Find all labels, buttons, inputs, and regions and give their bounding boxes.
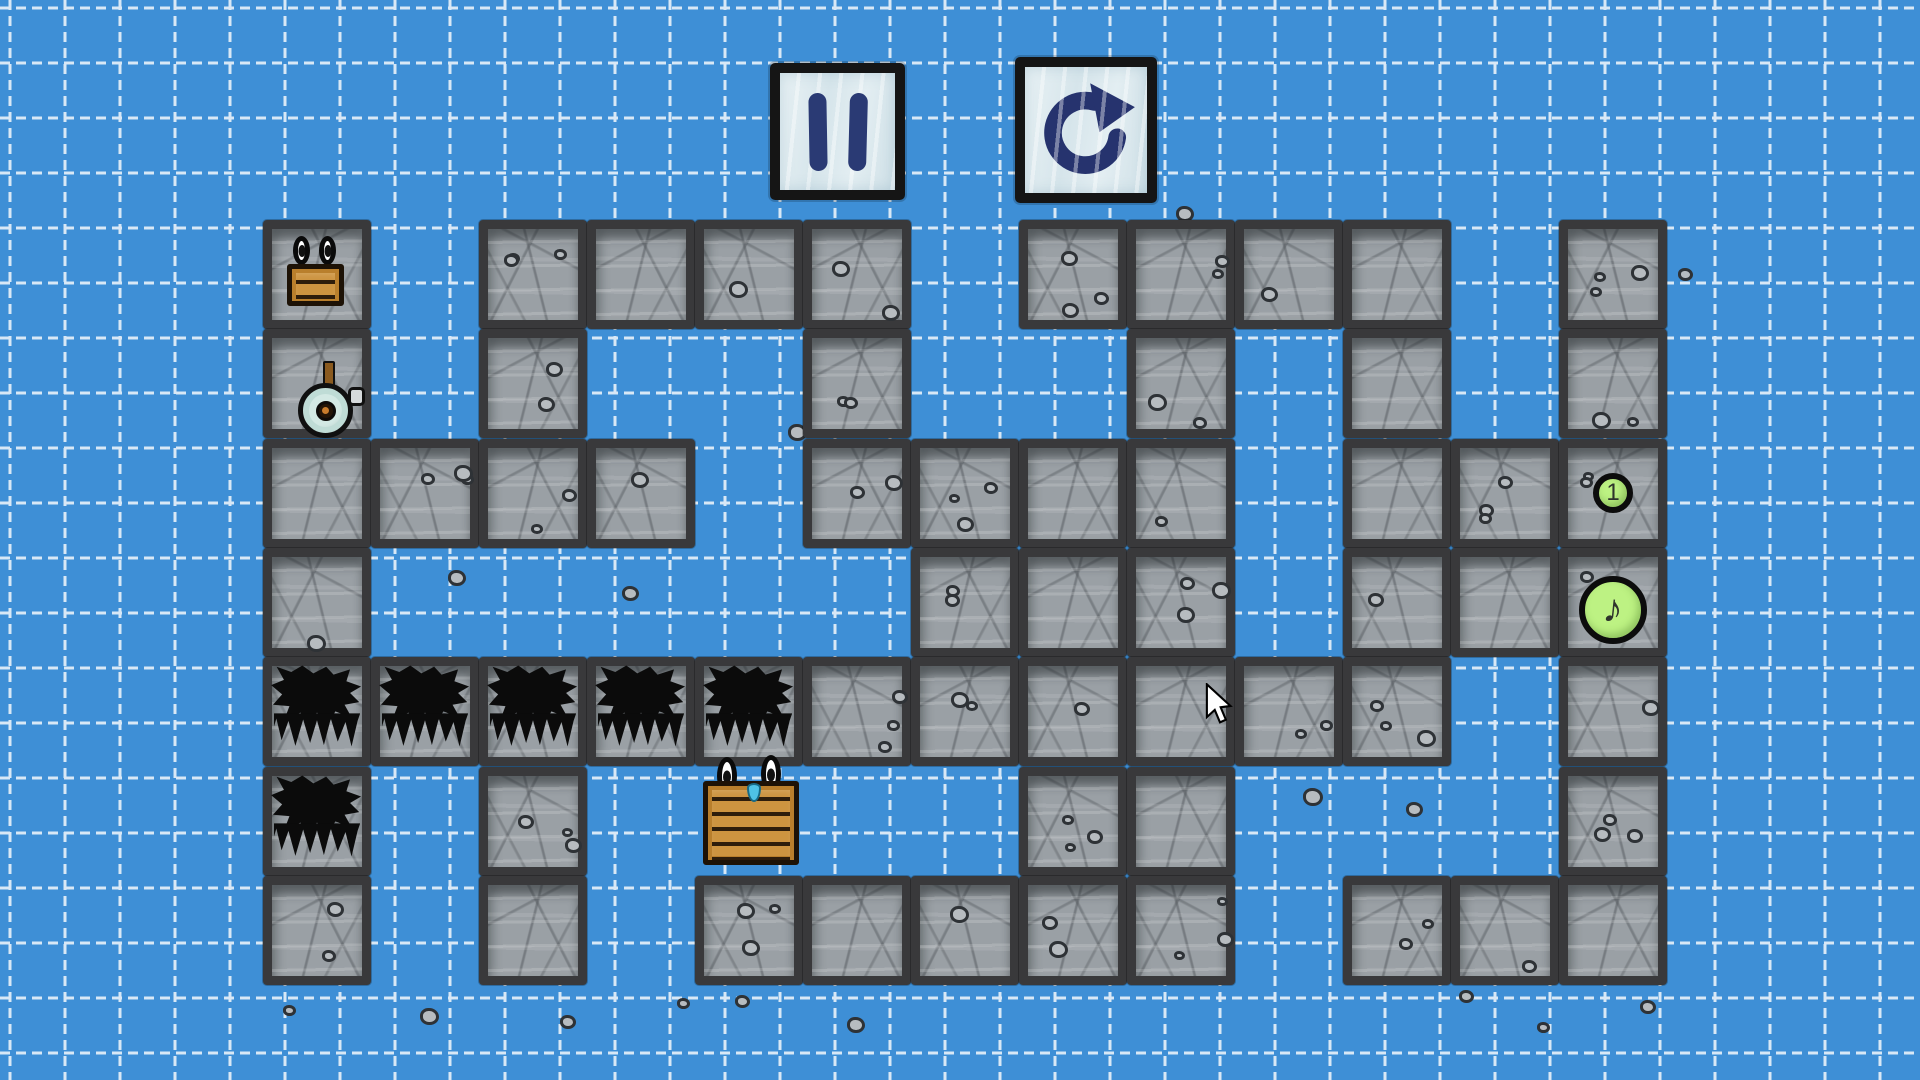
pebble [878, 741, 892, 753]
pebble [882, 305, 900, 321]
pebble [1180, 577, 1195, 590]
pebble [1590, 287, 1602, 297]
pebble [562, 489, 577, 502]
pause-icon [808, 92, 827, 170]
stone-tile [911, 548, 1019, 657]
pebble [1498, 476, 1513, 489]
stone-tile [911, 439, 1019, 548]
stone-tile [803, 439, 911, 548]
pebble [518, 815, 534, 829]
stone-tile [1559, 876, 1667, 985]
pebble [1592, 412, 1611, 429]
mouse-cursor [1205, 683, 1235, 725]
stone-tile [1019, 548, 1127, 657]
bomb-nub [348, 387, 365, 406]
pebble [887, 720, 900, 731]
pebble [1303, 788, 1323, 806]
pebble [1217, 897, 1228, 906]
pause-button[interactable] [770, 63, 905, 200]
pebble [1631, 265, 1649, 281]
pebble [1627, 829, 1643, 843]
pebble [1603, 814, 1617, 826]
pebble [850, 486, 865, 499]
pebble [1642, 700, 1660, 716]
pebble [1148, 394, 1167, 411]
spike-tile [695, 657, 803, 766]
spike-teeth-icon [706, 713, 792, 748]
pebble [562, 828, 573, 837]
spike-teeth-icon [274, 823, 360, 858]
spike-tile [587, 657, 695, 766]
pebble [560, 1015, 576, 1029]
pebble [1417, 730, 1436, 747]
stone-tile [695, 220, 803, 329]
stone-tile [587, 439, 695, 548]
pebble [742, 940, 760, 956]
stone-tile [1343, 329, 1451, 438]
stone-tile [803, 220, 911, 329]
pebble [420, 1008, 439, 1025]
pebble [1320, 720, 1333, 731]
pebble [322, 950, 336, 962]
pebble [554, 249, 567, 260]
stone-tile [1451, 439, 1559, 548]
pebble [1368, 593, 1384, 607]
small-crate[interactable] [287, 236, 344, 306]
stone-tile [1127, 767, 1235, 876]
pebble [1537, 1022, 1550, 1033]
stone-tile [1019, 767, 1127, 876]
stone-tile [911, 657, 1019, 766]
pebble [729, 281, 748, 298]
pebble [735, 995, 750, 1008]
stone-tile [1127, 876, 1235, 985]
stone-tile [479, 767, 587, 876]
pebble [565, 838, 582, 853]
stone-tile [479, 329, 587, 438]
pebble [1479, 513, 1492, 524]
crate-eye-icon [293, 236, 310, 265]
pebble [1212, 269, 1224, 279]
pebble [283, 1005, 296, 1016]
pebble [1380, 721, 1392, 731]
switch-button-1[interactable]: 1 [1593, 473, 1633, 513]
stone-tile [1127, 439, 1235, 548]
stone-tile [1343, 876, 1451, 985]
stone-tile [1019, 876, 1127, 985]
stone-tile [1019, 657, 1127, 766]
big-crate[interactable] [703, 757, 799, 865]
pebble [1177, 607, 1195, 623]
pebble [1042, 916, 1058, 930]
pebble [1212, 582, 1231, 599]
pebble [1370, 700, 1384, 712]
stone-tile [1235, 657, 1343, 766]
pebble [949, 494, 960, 503]
pebble [945, 594, 960, 607]
stone-tile [1559, 767, 1667, 876]
pebble [950, 906, 969, 923]
stone-tile [911, 876, 1019, 985]
crate-eye-icon [319, 236, 336, 265]
pebble [1217, 932, 1234, 947]
stone-tile [263, 548, 371, 657]
pebble [538, 397, 555, 412]
pebble [677, 998, 690, 1009]
pebble [1094, 292, 1109, 305]
bomb-body [298, 383, 353, 438]
pebble [1062, 303, 1079, 318]
pebble [1193, 417, 1207, 429]
spike-tile [479, 657, 587, 766]
pebble [1049, 941, 1068, 958]
stone-tile [1019, 220, 1127, 329]
bomb-core-icon [316, 401, 336, 421]
pebble [1062, 815, 1074, 825]
pebble [421, 473, 435, 485]
stone-tile [1019, 439, 1127, 548]
stone-tile [1343, 548, 1451, 657]
pebble [1074, 702, 1090, 716]
stone-tile [263, 876, 371, 985]
pebble [448, 570, 466, 586]
pebble [1594, 272, 1606, 282]
game-stage: 1♪ [0, 0, 1920, 1080]
pebble [847, 1017, 865, 1033]
stone-tile [1559, 329, 1667, 438]
pebble [966, 701, 978, 711]
stone-tile [803, 657, 911, 766]
restart-arrow-icon [1034, 76, 1138, 184]
spike-teeth-icon [598, 713, 684, 748]
pebble [1627, 417, 1639, 427]
stone-tile [695, 876, 803, 985]
stone-tile [1343, 657, 1451, 766]
stone-tile [587, 220, 695, 329]
pause-icon [847, 92, 867, 170]
stone-tile [263, 439, 371, 548]
stone-tile [1559, 657, 1667, 766]
spike-tile [263, 657, 371, 766]
pebble [1422, 919, 1434, 929]
spike-teeth-icon [490, 713, 576, 748]
pebble [504, 254, 519, 267]
spike-teeth-icon [382, 713, 468, 748]
pebble [454, 465, 473, 482]
pebble [1640, 1000, 1656, 1014]
stone-tile [371, 439, 479, 548]
stone-tile [1451, 548, 1559, 657]
pebble [1061, 251, 1078, 266]
spike-teeth-icon [274, 713, 360, 748]
pebble [1087, 830, 1103, 844]
stone-tile [1127, 548, 1235, 657]
stone-tile [1127, 329, 1235, 438]
pebble [327, 902, 344, 917]
stone-tile [479, 220, 587, 329]
pebble [832, 261, 850, 277]
pebble [1580, 477, 1593, 488]
pebble [1594, 827, 1611, 842]
music-note-button[interactable]: ♪ [1579, 576, 1647, 644]
crate-body [287, 264, 344, 306]
pebble [984, 482, 998, 494]
pebble [1678, 268, 1693, 281]
pebble [957, 517, 974, 532]
pebble [1261, 287, 1278, 302]
spike-tile [263, 767, 371, 876]
pebble [1399, 938, 1413, 950]
pebble [885, 475, 903, 491]
pebble [844, 397, 858, 409]
pebble [1522, 960, 1537, 973]
pebble [631, 472, 649, 488]
pebble [1065, 843, 1076, 852]
button-label: 1 [1606, 479, 1619, 507]
pebble [531, 524, 543, 534]
stone-tile [1343, 439, 1451, 548]
bomb-character[interactable] [296, 361, 366, 441]
spike-tile [371, 657, 479, 766]
pebble [1295, 729, 1307, 739]
pebble [737, 903, 755, 919]
stone-tile [803, 876, 911, 985]
pebble [1580, 571, 1594, 583]
restart-button[interactable] [1015, 57, 1157, 203]
stone-tile [479, 876, 587, 985]
pebble [1406, 802, 1423, 817]
pebble [1155, 516, 1168, 527]
pebble [1459, 990, 1474, 1003]
stone-tile [1235, 220, 1343, 329]
pebble [622, 586, 639, 601]
pebble [769, 904, 781, 914]
pebble [1215, 255, 1230, 268]
stone-tile [1559, 220, 1667, 329]
pebble [1174, 951, 1185, 960]
stone-tile [803, 329, 911, 438]
pebble [546, 362, 563, 377]
pebble [307, 635, 326, 652]
stone-tile [479, 439, 587, 548]
pebble [892, 690, 908, 704]
stone-tile [1343, 220, 1451, 329]
stone-tile [1451, 876, 1559, 985]
music-note-icon: ♪ [1601, 586, 1626, 633]
stone-tile [1127, 220, 1235, 329]
